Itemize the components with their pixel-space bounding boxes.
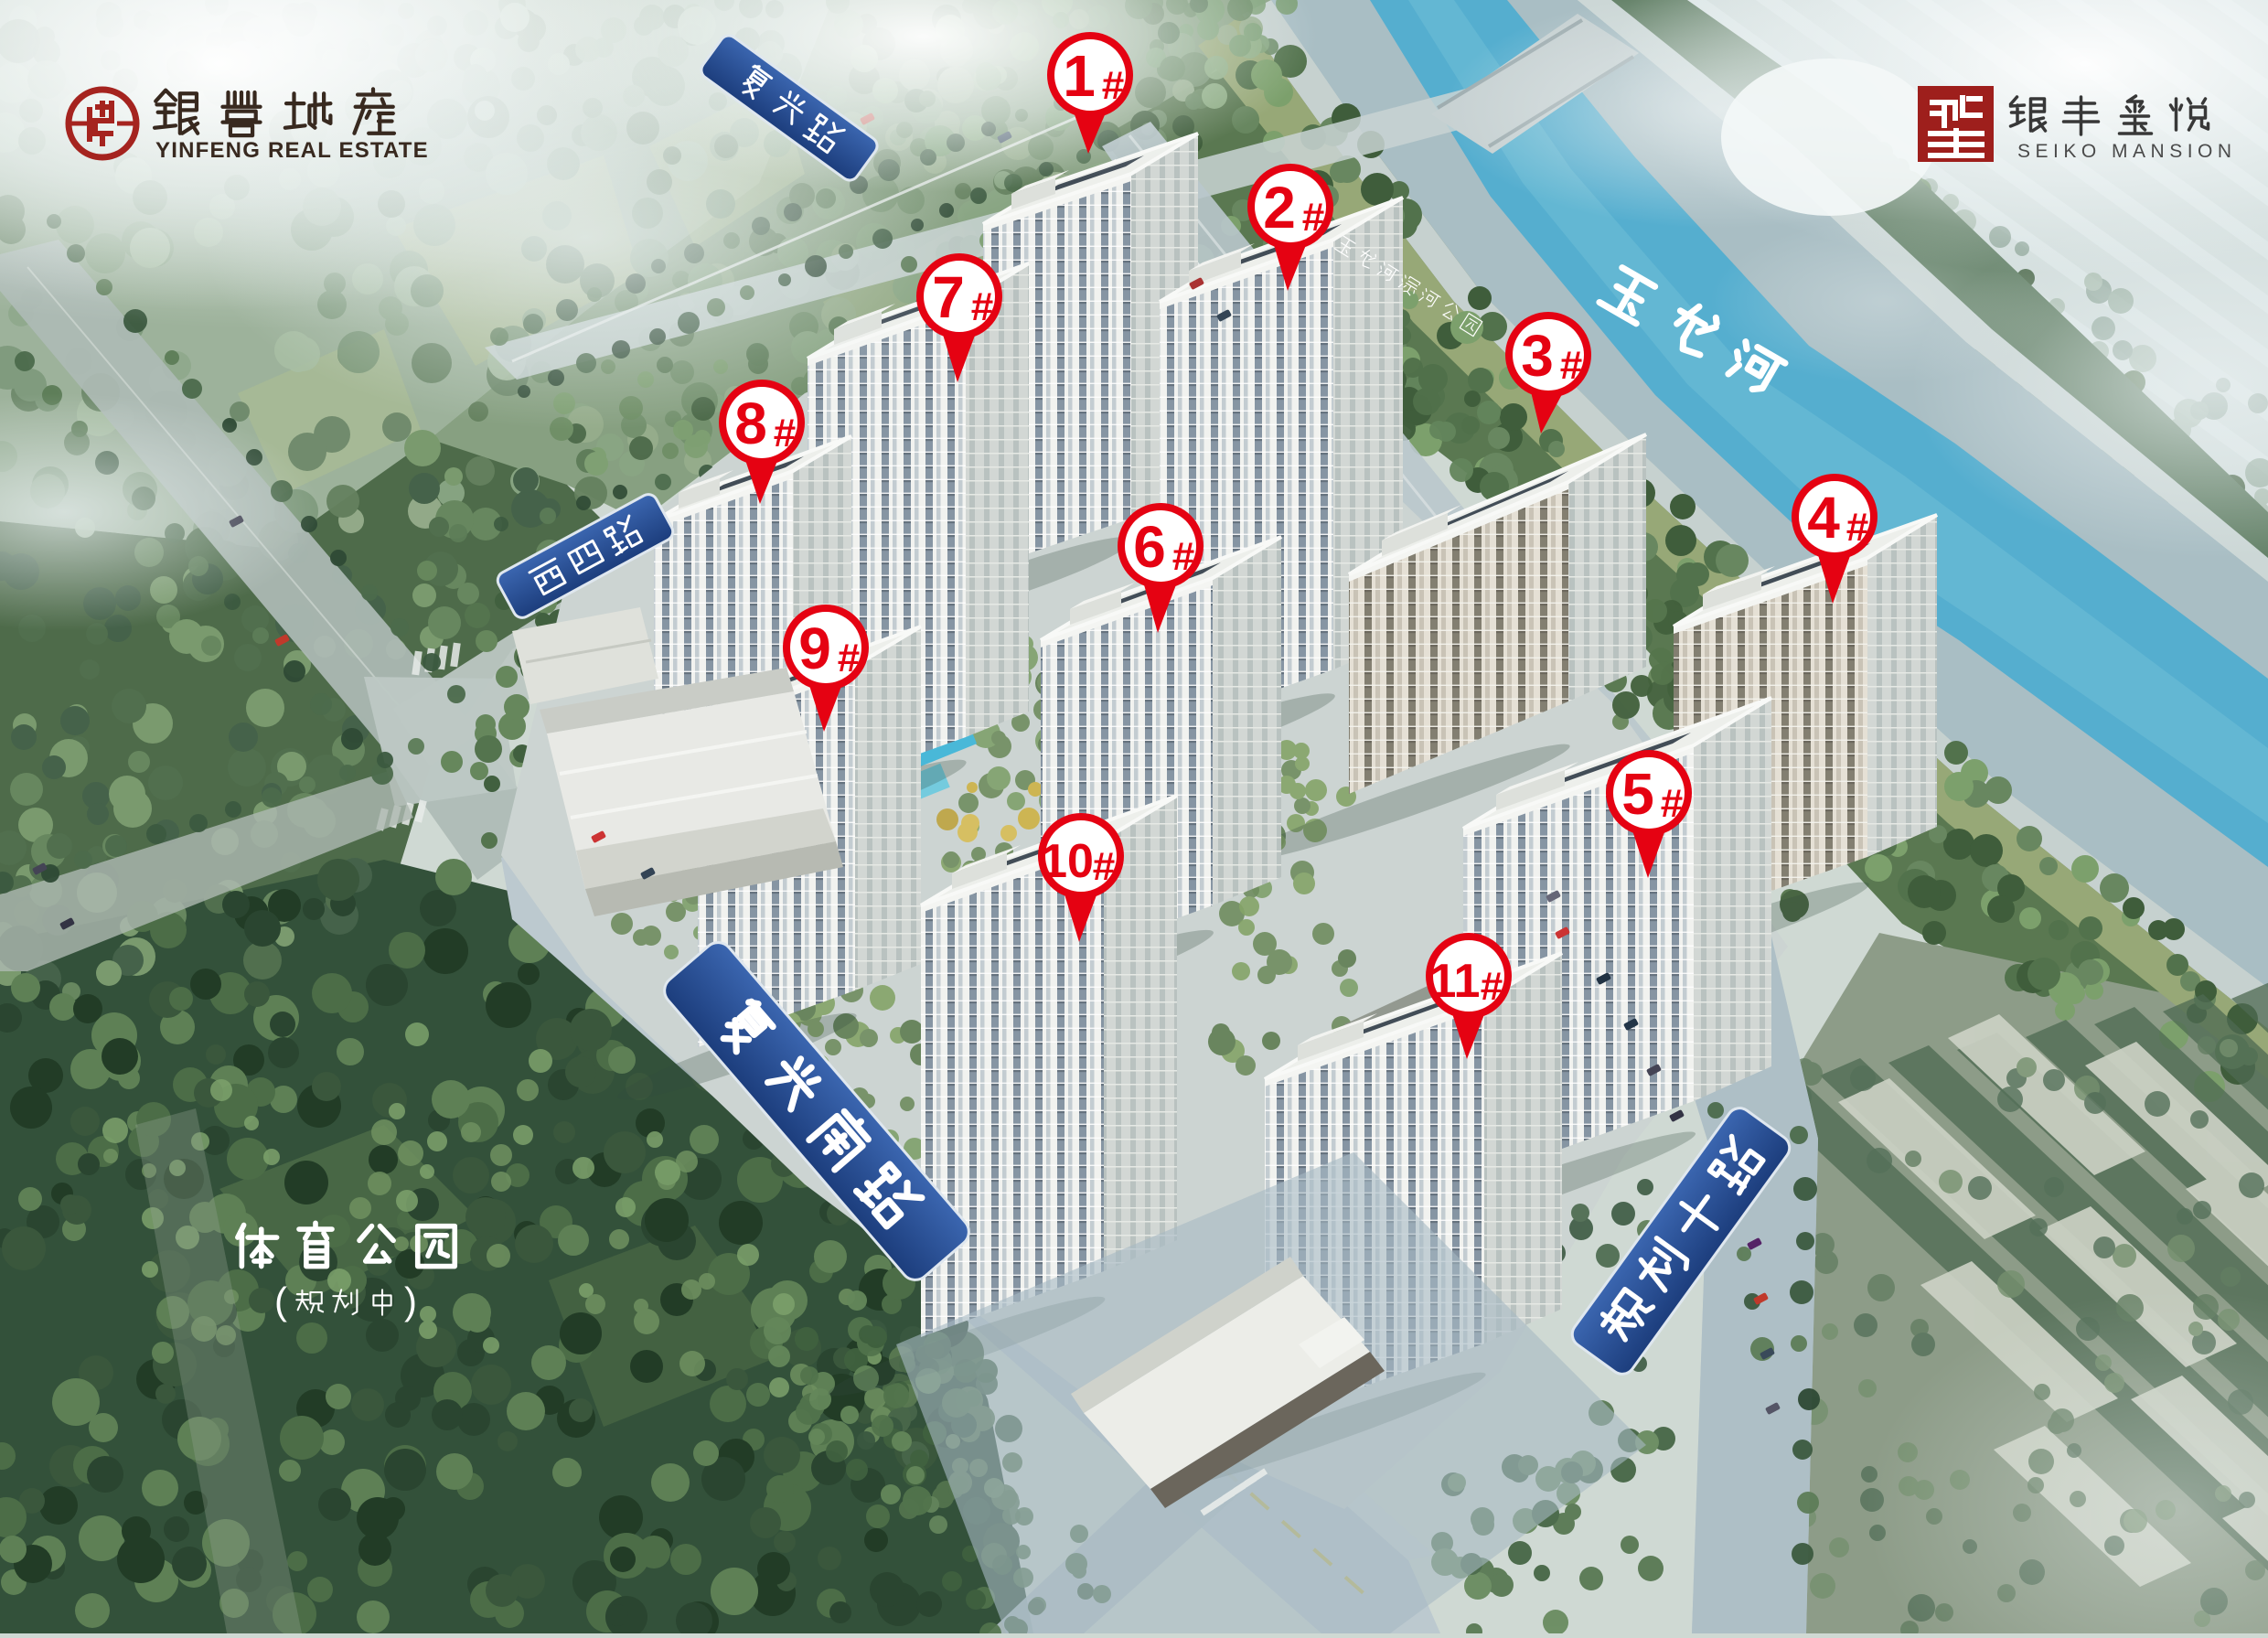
svg-text:11: 11 (1430, 955, 1481, 1008)
svg-text:1: 1 (1063, 43, 1096, 109)
svg-text:2: 2 (1263, 175, 1296, 241)
svg-text:#: # (971, 284, 993, 329)
svg-text:#: # (1172, 534, 1194, 579)
svg-text:#: # (1846, 505, 1868, 550)
svg-text:#: # (1661, 781, 1683, 826)
svg-text:#: # (1481, 964, 1503, 1009)
svg-text:3: 3 (1521, 323, 1554, 389)
svg-text:8: 8 (734, 391, 767, 456)
svg-text:#: # (1093, 844, 1115, 889)
svg-text:#: # (774, 411, 796, 455)
svg-text:5: 5 (1621, 761, 1654, 827)
svg-text:7: 7 (932, 264, 965, 330)
svg-text:#: # (1302, 195, 1324, 240)
svg-text:6: 6 (1133, 514, 1166, 580)
svg-text:10: 10 (1041, 835, 1094, 888)
svg-text:SEIKO MANSION: SEIKO MANSION (2017, 141, 2237, 162)
svg-text:YINFENG REAL ESTATE: YINFENG REAL ESTATE (155, 138, 429, 163)
svg-text:#: # (1560, 343, 1582, 388)
svg-text:4: 4 (1807, 485, 1840, 551)
svg-text:#: # (1102, 63, 1124, 108)
svg-text:): ) (404, 1279, 417, 1322)
svg-text:(: ( (274, 1279, 287, 1322)
svg-text:#: # (838, 636, 860, 680)
svg-text:9: 9 (798, 616, 831, 681)
